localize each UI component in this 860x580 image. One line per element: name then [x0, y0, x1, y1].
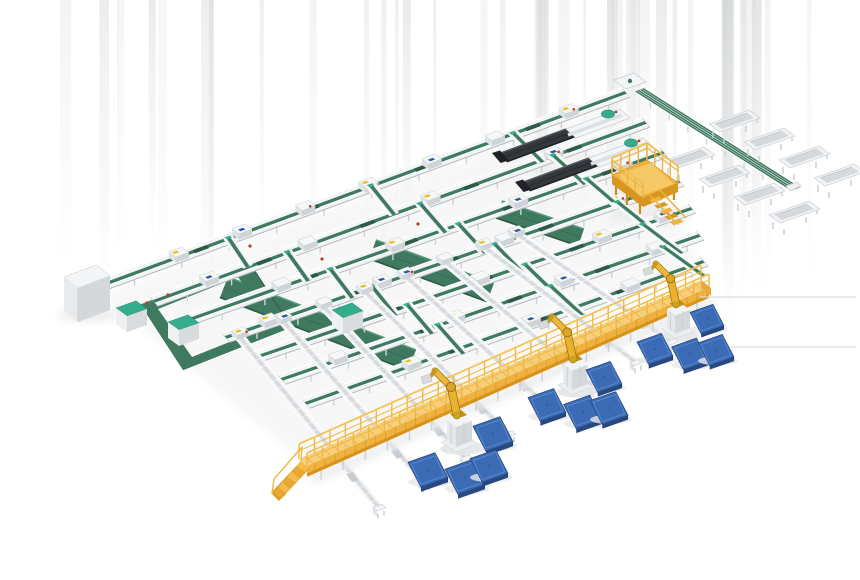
corner-wheel	[628, 79, 632, 83]
streak	[765, 0, 771, 307]
elbow-joint	[563, 328, 572, 337]
screenshot-canvas: Automated parcel sorting and palletizing…	[0, 0, 860, 580]
elbow-joint	[446, 382, 455, 391]
pallet-center	[488, 465, 490, 467]
status-dot	[626, 161, 629, 164]
shoulder-joint	[673, 301, 680, 308]
pallet-center	[582, 411, 584, 413]
pallet-center	[608, 407, 610, 409]
pallet-center	[654, 348, 656, 350]
pallet-center	[603, 376, 605, 378]
pallet-center	[706, 318, 708, 320]
streak	[118, 0, 124, 262]
pallet-center	[546, 404, 548, 406]
elbow-joint	[666, 274, 674, 282]
status-dot	[638, 140, 641, 143]
factory-3d-render: Automated parcel sorting and palletizing…	[0, 0, 860, 580]
pallet-center	[464, 476, 466, 478]
pallet-center	[492, 433, 494, 435]
status-dot	[572, 108, 575, 111]
teal-cap	[602, 110, 615, 118]
status-dot	[615, 111, 618, 114]
status-dot	[622, 197, 625, 200]
chute-table	[769, 201, 820, 235]
ramp-rail-post	[301, 447, 302, 461]
pallet-center	[427, 469, 429, 471]
streak	[149, 0, 156, 250]
status-dot	[248, 244, 251, 247]
pallet-center	[715, 349, 717, 351]
teal-cap	[625, 139, 638, 147]
shoulder-joint	[569, 356, 576, 363]
pallet-center	[689, 353, 691, 355]
status-dot	[411, 271, 414, 274]
status-dot	[309, 205, 312, 208]
status-dot	[416, 222, 419, 225]
streak	[688, 0, 693, 262]
status-dot	[145, 301, 148, 304]
status-dot	[245, 330, 248, 333]
shoulder-joint	[453, 411, 461, 419]
streak	[99, 0, 109, 306]
streak	[117, 0, 119, 299]
chute-table	[814, 164, 860, 198]
pallet	[408, 453, 452, 492]
status-dot	[557, 151, 560, 154]
status-dot	[166, 293, 169, 296]
status-dot	[320, 257, 323, 260]
streak	[60, 0, 71, 273]
